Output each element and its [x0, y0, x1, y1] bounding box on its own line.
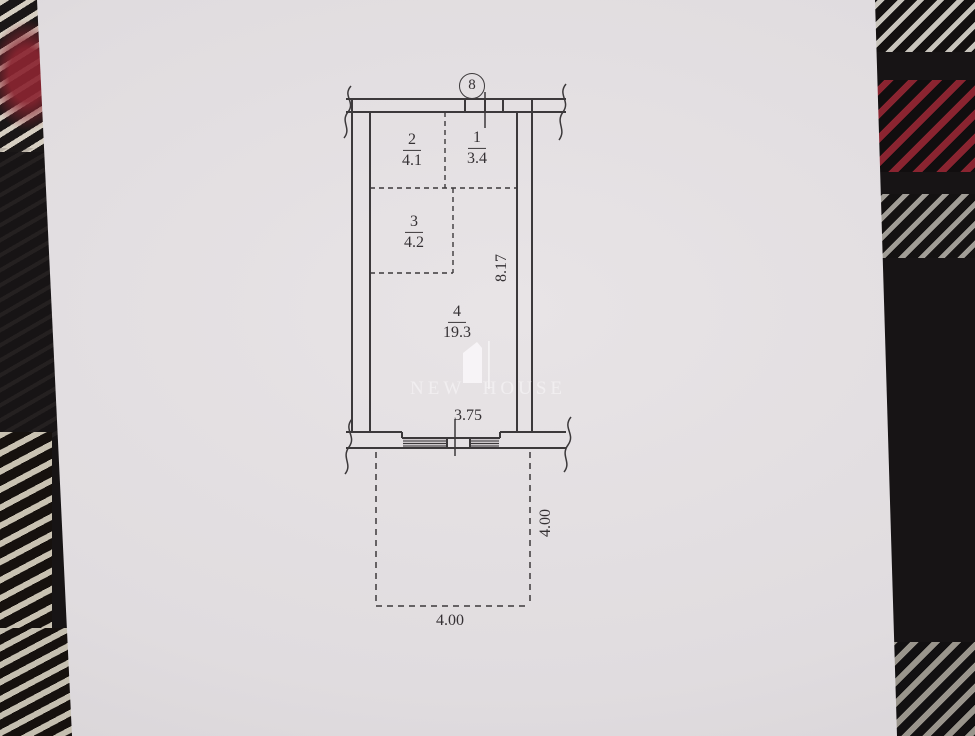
dim-balcony-width: 4.00	[436, 612, 464, 630]
dim-interior-height: 8.17	[493, 254, 511, 282]
balcony-dashed-outline	[376, 452, 530, 606]
interior-partition-dashed-lines	[370, 112, 517, 273]
room-3-number: 3	[405, 213, 423, 233]
room-2-area: 4.1	[402, 152, 422, 170]
room-label-1: 1 3.4	[467, 129, 487, 167]
watermark-text: NEW HOUSE	[410, 378, 566, 400]
dim-balcony-depth: 4.00	[537, 509, 555, 537]
unit-number: 8	[468, 77, 476, 93]
room-label-2: 2 4.1	[402, 131, 422, 169]
room-2-number: 2	[403, 131, 421, 151]
photo-of-floor-plan: 8 1 3.4 2 4.1 3 4.2 4 19.3 8.17 3.75 4.0…	[0, 0, 975, 736]
window-hatching	[403, 439, 499, 448]
room-4-number: 4	[448, 303, 466, 323]
room-1-number: 1	[468, 129, 486, 149]
unit-number-badge: 8	[459, 73, 485, 99]
room-label-4: 4 19.3	[443, 303, 471, 341]
dim-window-width: 3.75	[454, 407, 482, 425]
room-label-3: 3 4.2	[404, 213, 424, 251]
room-3-area: 4.2	[404, 234, 424, 252]
room-1-area: 3.4	[467, 150, 487, 168]
